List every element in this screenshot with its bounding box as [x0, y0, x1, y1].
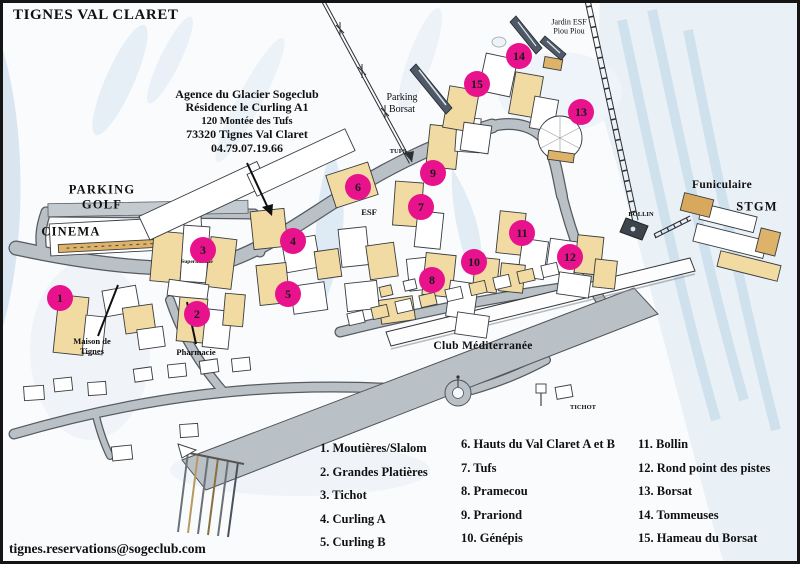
- legend-item: 2. Grandes Platières: [320, 466, 428, 479]
- map-label-stgm: STGM: [736, 200, 778, 215]
- legend-item: 14. Tommeuses: [638, 509, 770, 522]
- map-marker-8: 8: [419, 267, 445, 293]
- map-marker-6: 6: [345, 174, 371, 200]
- map-label-tichot: TICHOT: [570, 404, 596, 412]
- agency-name: Agence du Glacier Sogeclub: [146, 88, 348, 101]
- map-marker-11: 11: [509, 220, 535, 246]
- agency-residence: Résidence le Curling A1: [146, 101, 348, 114]
- map-label-esf: ESF: [361, 207, 377, 217]
- map-label-parking-golf: PARKINGGOLF: [69, 182, 136, 212]
- map-marker-4: 4: [280, 228, 306, 254]
- map-label-bollin: BOLLIN: [628, 211, 653, 219]
- legend-item: 12. Rond point des pistes: [638, 462, 770, 475]
- legend-item: 6. Hauts du Val Claret A et B: [461, 438, 615, 451]
- map-label-cinema: CINEMA: [41, 225, 100, 240]
- legend-item: 15. Hameau du Borsat: [638, 532, 770, 545]
- legend-item: 9. Prariond: [461, 509, 615, 522]
- agency-street: 120 Montée des Tufs: [146, 115, 348, 128]
- map-label-pharmacie: Pharmacie: [176, 347, 215, 357]
- legend-column-2: 6. Hauts du Val Claret A et B7. Tufs8. P…: [461, 438, 615, 556]
- map-marker-14: 14: [506, 43, 532, 69]
- map-marker-12: 12: [557, 244, 583, 270]
- map-marker-7: 7: [408, 194, 434, 220]
- legend-item: 5. Curling B: [320, 536, 428, 549]
- map-marker-13: 13: [568, 99, 594, 125]
- map-label-club-mediterranee: Club Méditerranée: [433, 340, 532, 354]
- map-label-parking-borsat: ParkingBorsat: [386, 92, 417, 116]
- contact-email: tignes.reservations@sogeclub.com: [9, 541, 206, 557]
- legend-item: 4. Curling A: [320, 513, 428, 526]
- map-label-maison-de-tignes: Maison deTignes: [73, 336, 111, 356]
- page-title: TIGNES VAL CLARET: [13, 7, 179, 24]
- legend-item: 10. Génépis: [461, 532, 615, 545]
- legend-item: 11. Bollin: [638, 438, 770, 451]
- map-label-funiculaire: Funiculaire: [692, 179, 752, 193]
- agency-phone: 04.79.07.19.66: [146, 142, 348, 155]
- map-marker-10: 10: [461, 249, 487, 275]
- resort-map: TIGNES VAL CLARET Agence du Glacier Soge…: [0, 0, 800, 564]
- map-marker-9: 9: [420, 160, 446, 186]
- map-marker-3: 3: [190, 237, 216, 263]
- legend-column-3: 11. Bollin12. Rond point des pistes13. B…: [638, 438, 770, 556]
- legend-item: 8. Pramecou: [461, 485, 615, 498]
- agency-city: 73320 Tignes Val Claret: [146, 128, 348, 141]
- tichot-buildings: [536, 384, 573, 406]
- map-marker-15: 15: [464, 71, 490, 97]
- legend-item: 7. Tufs: [461, 462, 615, 475]
- map-marker-5: 5: [275, 281, 301, 307]
- map-marker-2: 2: [184, 301, 210, 327]
- legend-column-1: 1. Moutières/Slalom2. Grandes Platières3…: [320, 442, 428, 560]
- map-label-tufs: TUFS: [390, 148, 407, 156]
- legend-item: 3. Tichot: [320, 489, 428, 502]
- map-label-jardin-esf: Jardin ESFPiou Piou: [551, 18, 586, 37]
- legend-item: 1. Moutières/Slalom: [320, 442, 428, 455]
- agency-info-block: Agence du Glacier Sogeclub Résidence le …: [146, 88, 348, 155]
- map-marker-1: 1: [47, 285, 73, 311]
- legend-item: 13. Borsat: [638, 485, 770, 498]
